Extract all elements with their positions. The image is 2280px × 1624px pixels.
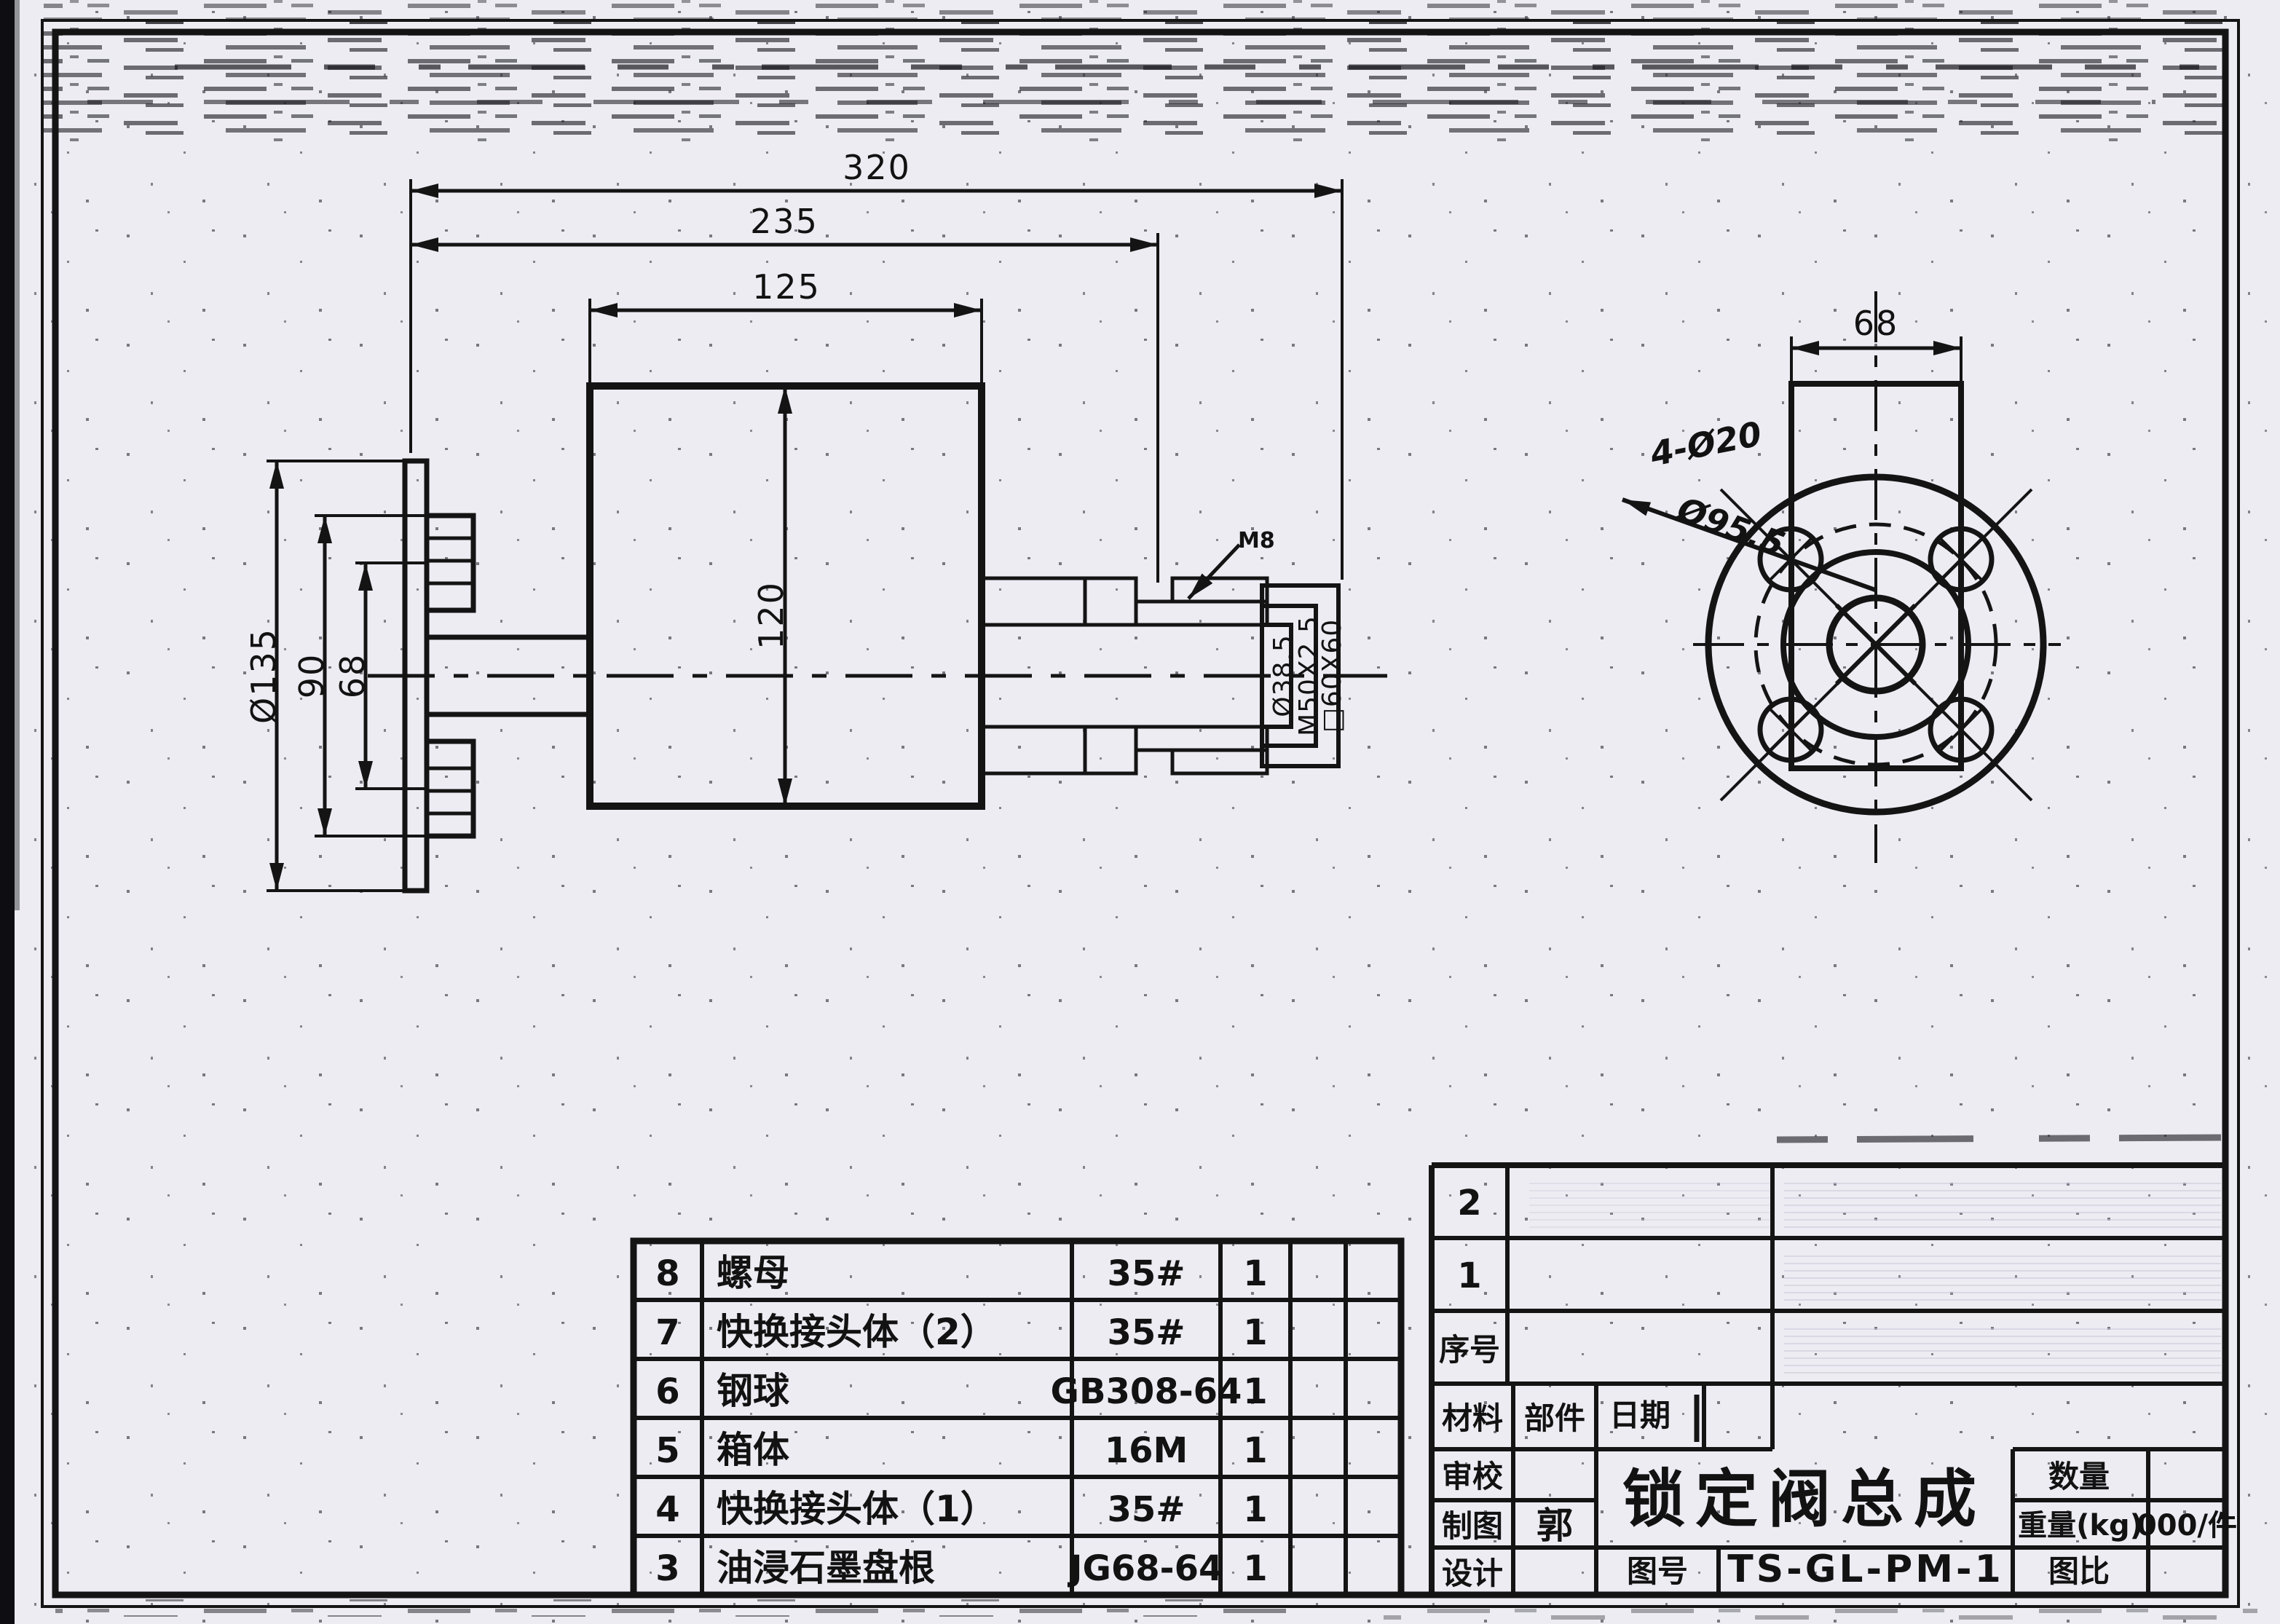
part-spec: JG68-64 [1068,1548,1223,1589]
part-spec: 35# [1107,1312,1185,1353]
part-spec: GB308-64 [1051,1371,1242,1412]
rev-row-2: 2 [1457,1183,1481,1223]
part-name: 油浸石墨盘根 [717,1547,935,1589]
svg-text:235: 235 [750,202,818,241]
drawing-canvas: Ø38.5 M50X2.5 □60X60 M8 320 235 [0,0,2280,1624]
part-no: 5 [655,1430,679,1471]
part-qty: 1 [1243,1430,1267,1471]
seq-label: 序号 [1439,1332,1500,1368]
part-qty: 1 [1243,1548,1267,1589]
part-qty: 1 [1243,1312,1267,1353]
svg-text:90: 90 [292,653,331,699]
date-label: 日期 [1609,1398,1670,1433]
review-label: 审校 [1442,1459,1503,1494]
svg-text:68: 68 [1853,304,1899,343]
part-name: 快换接头体（2） [717,1311,997,1353]
part-qty: 1 [1243,1371,1267,1412]
qty-label: 数量 [2048,1459,2110,1494]
part-spec: 35# [1107,1253,1185,1294]
svg-text:120: 120 [752,581,791,650]
part-spec: 16M [1105,1430,1188,1471]
m8-label: M8 [1238,528,1275,553]
drawing-sheet: Ø38.5 M50X2.5 □60X60 M8 320 235 [0,0,2280,1624]
drawing-title: 锁定阀总成 [1622,1463,1987,1536]
scale-label: 图比 [2048,1553,2110,1589]
material-label: 材料 [1442,1400,1503,1436]
part-qty: 1 [1243,1489,1267,1530]
draft-label: 制图 [1442,1508,1503,1544]
part-name: 箱体 [717,1429,789,1471]
part-name: 快换接头体（1） [717,1488,997,1530]
part-no: 7 [655,1312,679,1353]
svg-text:68: 68 [333,653,372,699]
part-name: 螺母 [717,1252,789,1294]
dwgno-value: TS-GL-PM-1 [1727,1548,2004,1591]
part-no: 3 [655,1548,679,1589]
part-no: 4 [655,1489,679,1530]
svg-text:Ø135: Ø135 [244,628,283,724]
part-no: 6 [655,1371,679,1412]
draft-value: 郭 [1537,1505,1573,1547]
part-label: 部件 [1524,1400,1585,1436]
dim-square-end: □60X60 [1317,619,1347,733]
dwgno-label: 图号 [1627,1553,1688,1589]
weight-label: 重量(kg) [2018,1509,2143,1542]
part-spec: 35# [1107,1489,1185,1530]
rev-row-1: 1 [1457,1256,1481,1296]
part-name: 钢球 [717,1370,790,1412]
svg-text:320: 320 [843,148,911,187]
weight-value: 000/件 [2137,1509,2237,1542]
design-label: 设计 [1442,1556,1503,1591]
part-no: 8 [655,1253,679,1294]
svg-text:125: 125 [752,267,821,307]
part-qty: 1 [1243,1253,1267,1294]
